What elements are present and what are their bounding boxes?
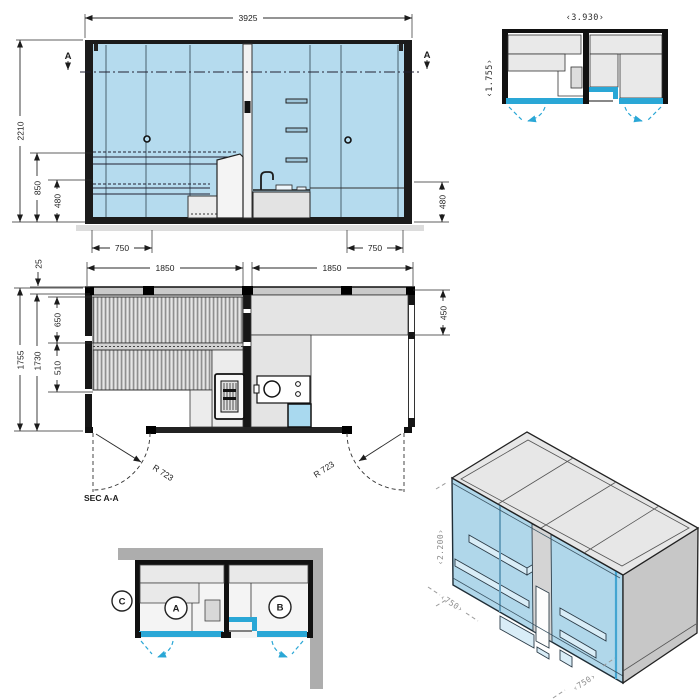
dim-1850-right: 1850 [252, 262, 413, 286]
context-glass-door-left [139, 631, 223, 637]
dim-label: 650 [53, 313, 63, 327]
door-radius-label: R 723 [312, 459, 337, 480]
plan-wall-joint [243, 309, 251, 313]
room-marker-b: B [269, 596, 291, 618]
faucet-plan-icon [254, 385, 259, 393]
divider-post [243, 44, 252, 218]
iso-dim-width: ‹750› [553, 658, 615, 698]
plan-wall-joint [85, 389, 92, 394]
bench-step-plan [190, 390, 212, 427]
overview-wall-right [662, 29, 668, 104]
plan-wall-bottom [85, 426, 412, 434]
room-marker-c: C [112, 591, 132, 611]
iso-dim-label: ‹750› [571, 672, 598, 694]
context-glass-step [229, 617, 257, 622]
context-door-swings [141, 641, 303, 657]
dim-label: 510 [53, 361, 63, 375]
sauna-bench-lower [93, 350, 212, 390]
sink-icon [264, 381, 280, 397]
bench-seam [93, 343, 243, 350]
room-marker-label: B [277, 603, 284, 614]
corner-fitting [94, 44, 98, 51]
dim-height-2210: 2210 [12, 40, 85, 222]
frame-post-right [404, 44, 412, 217]
dim-door-750-right: 750 [347, 230, 403, 253]
iso-dim-label: ‹2.200› [436, 529, 445, 566]
technical-drawing: A A 3925 2210 850 [0, 0, 700, 700]
dim-label: 1730 [33, 351, 43, 370]
isometric-view: ‹2.200› ‹750› ‹750› [428, 432, 698, 698]
sauna-bench-upper [93, 297, 243, 343]
heater-guard [217, 154, 243, 218]
hob-knob-icon [296, 382, 301, 387]
overview-glass-door-left [506, 98, 583, 104]
dim-door-750-left: 750 [92, 230, 152, 253]
dim-1755: 1755 [14, 288, 83, 431]
overview-glass-step [589, 87, 618, 92]
sink-cabinet [253, 192, 310, 218]
overview-depth-label: ‹1.755› [485, 59, 495, 98]
context-unit-wall-left [135, 560, 140, 638]
dim-label: 1755 [16, 350, 26, 369]
overview-glass-door-right [619, 98, 663, 104]
front-elevation-view: A A 3925 2210 850 [12, 13, 449, 253]
overview-wall-left [502, 29, 508, 104]
dim-label: 2210 [16, 121, 26, 140]
dim-lower-480-right: 480 [414, 182, 449, 222]
iso-dim-height: ‹2.200› [436, 483, 446, 606]
sauna-heater [215, 374, 244, 419]
dim-450: 450 [413, 290, 450, 335]
context-glass-door-right [257, 631, 307, 637]
frame-top [85, 40, 412, 44]
dim-label: 750 [368, 243, 382, 253]
plan-overview-view: ‹3.930› ‹1.755› [485, 13, 668, 121]
overview-glass-step [613, 92, 618, 99]
overview-door-swings [509, 107, 661, 121]
section-marker-right: A [424, 50, 431, 69]
plan-wall-joint [243, 342, 251, 346]
door-handle-icon [144, 136, 150, 142]
frame-post-left [85, 44, 93, 217]
door-lock-icon [245, 101, 251, 113]
dim-label: 850 [33, 181, 43, 195]
counter-band [251, 295, 408, 335]
door-swing-right: R 723 [312, 433, 404, 492]
iso-open-door [536, 586, 549, 648]
section-marker-label: A [65, 51, 72, 62]
dim-label: 480 [438, 195, 448, 209]
door-radius-label: R 723 [151, 462, 176, 483]
corner-fitting [399, 44, 403, 51]
room-marker-label: C [119, 597, 126, 608]
dim-label: 750 [115, 243, 129, 253]
dim-25: 25 [30, 256, 90, 287]
hob-knob-icon [296, 392, 301, 397]
technical-drawing-page: A A 3925 2210 850 [0, 0, 700, 700]
dim-width-3925: 3925 [85, 13, 412, 38]
iso-dim-label: ‹750› [438, 593, 465, 615]
context-wall-top [118, 548, 322, 560]
section-marker-left: A [65, 51, 72, 70]
ground-line [76, 225, 424, 231]
room-marker-label: A [173, 604, 180, 615]
room-marker-a: A [165, 597, 187, 619]
dim-label: 480 [53, 194, 63, 208]
plan-wall-right [408, 295, 415, 427]
context-unit-wall-right [308, 560, 313, 638]
context-glass-step [252, 622, 257, 631]
overview-width-label: ‹3.930› [566, 13, 605, 23]
shower-tray [288, 404, 311, 427]
section-title: SEC A-A [84, 493, 119, 503]
plan-wall-joint [85, 336, 92, 341]
counter-item [297, 187, 306, 190]
plan-wall-left [85, 295, 92, 427]
dim-label: 450 [439, 306, 449, 320]
door-swing-left: R 723 [93, 433, 176, 492]
dim-label: 1850 [156, 263, 175, 273]
dim-label: 3925 [239, 13, 258, 23]
door-handle-icon [345, 137, 351, 143]
dim-1850-left: 1850 [87, 262, 243, 286]
context-unit-wall-divider [224, 560, 229, 638]
plan-context-view: C A B [112, 548, 323, 689]
dim-label: 25 [34, 259, 44, 269]
plan-section-view: 1850 1850 25 1755 [14, 256, 450, 503]
basin-item [276, 185, 292, 190]
overview-wall-divider [583, 29, 589, 104]
dim-label: 1850 [323, 263, 342, 273]
section-marker-label: A [424, 50, 431, 61]
